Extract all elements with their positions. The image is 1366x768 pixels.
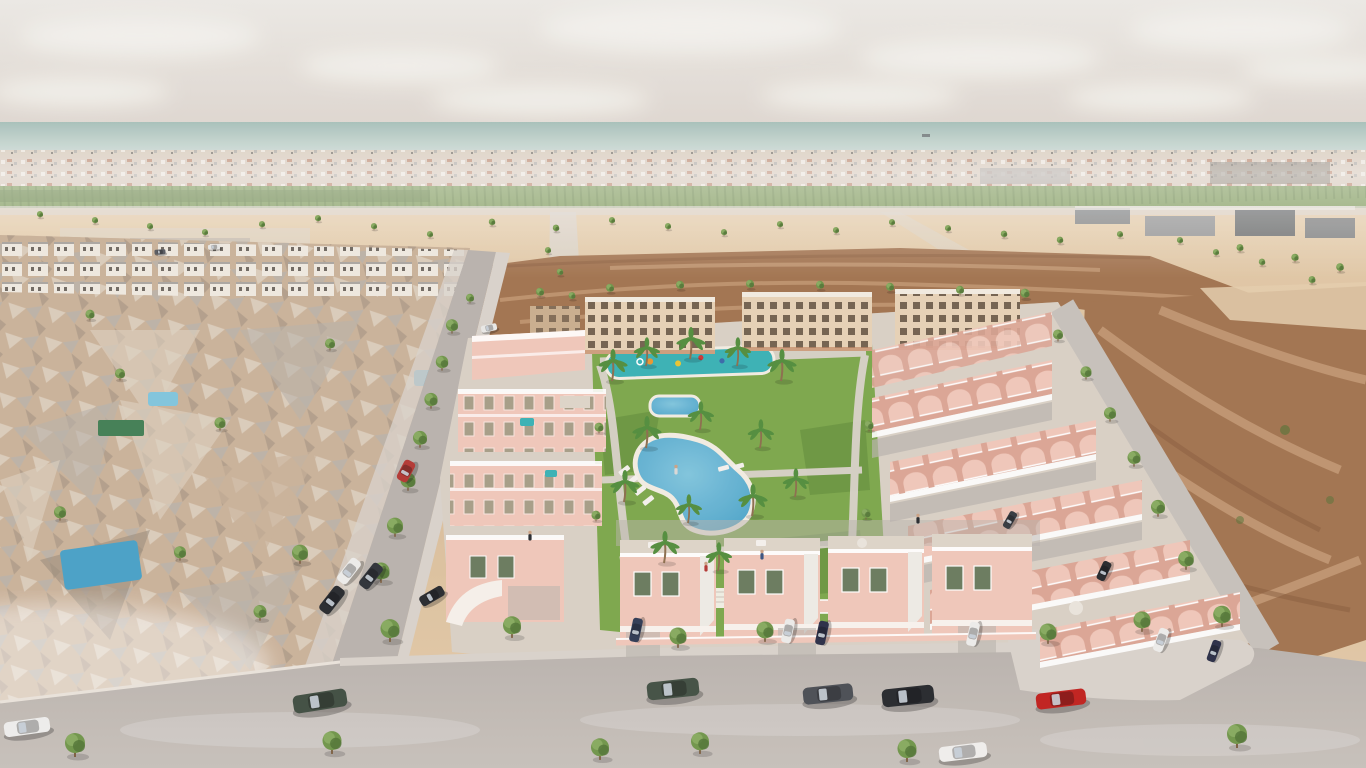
atmosphere-tint [0,0,1366,768]
aerial-render-scene [0,0,1366,768]
